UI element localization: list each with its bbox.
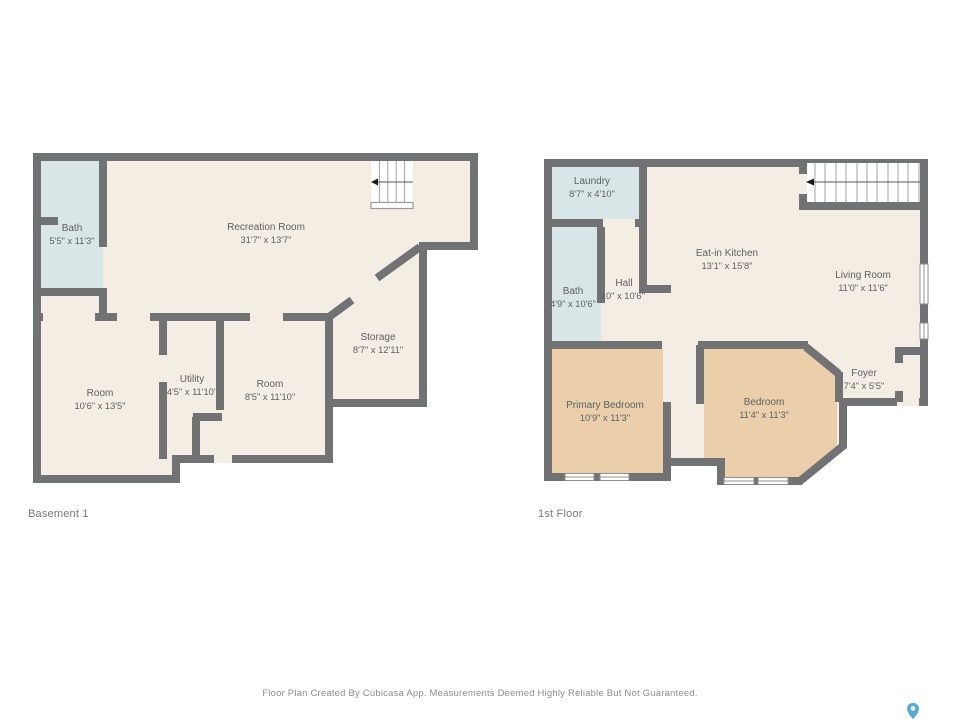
room-label: Hall: [615, 278, 632, 289]
room-label: Utility: [180, 374, 204, 385]
room-dimensions: 13'1" x 15'8": [702, 261, 753, 271]
room-dimensions: 8'5" x 11'10": [245, 392, 295, 402]
room-label: Foyer: [851, 368, 877, 379]
room-label: Recreation Room: [227, 222, 305, 233]
basement-stairs: [371, 161, 413, 209]
room-label: Living Room: [835, 270, 891, 281]
room-dimensions: 10'6" x 13'5": [75, 401, 126, 411]
room-dimensions: 31'7" x 13'7": [241, 235, 292, 245]
room-dimensions: 11'4" x 11'3": [739, 410, 789, 420]
room-label: Laundry: [574, 176, 610, 187]
first-floor-plan: Laundry 8'7" x 4'10" Bath 4'9" x 10'6" H…: [535, 145, 945, 490]
room-label: Bath: [62, 223, 83, 234]
room-dimensions: 10'9" x 11'3": [580, 413, 630, 423]
room-label: Room: [87, 388, 114, 399]
basement-door-gap: [214, 455, 232, 463]
room-label: Room: [257, 379, 284, 390]
room-dimensions: 7'4" x 5'5": [844, 381, 885, 391]
disclaimer-text: Floor Plan Created By Cubicasa App. Meas…: [0, 688, 960, 699]
room-dimensions: 8'7" x 4'10": [569, 189, 615, 199]
basement-plan-title: Basement 1: [28, 508, 89, 520]
room-dimensions: 5'5" x 11'3": [49, 236, 94, 246]
room-label: Bath: [563, 286, 584, 297]
room-dimensions: '10" x 10'6": [599, 291, 645, 301]
room-label: Bedroom: [744, 397, 785, 408]
basement-floor-plan: Bath 5'5" x 11'3" Recreation Room 31'7" …: [25, 145, 495, 490]
room-label: Storage: [360, 332, 395, 343]
room-dimensions: 4'5" x 11'10": [167, 387, 217, 397]
room-label: Primary Bedroom: [566, 400, 644, 411]
first-floor-plan-title: 1st Floor: [538, 508, 583, 520]
room-label: Eat-in Kitchen: [696, 248, 758, 259]
first-floor-stairs: [806, 163, 920, 202]
location-pin-icon: [906, 702, 920, 720]
room-dimensions: 8'7" x 12'11": [353, 345, 403, 355]
room-dimensions: 4'9" x 10'6": [550, 299, 596, 309]
room-dimensions: 11'0" x 11'6": [838, 283, 888, 293]
basement-stairs-landing: [371, 203, 413, 209]
bath-floor: [548, 227, 601, 341]
